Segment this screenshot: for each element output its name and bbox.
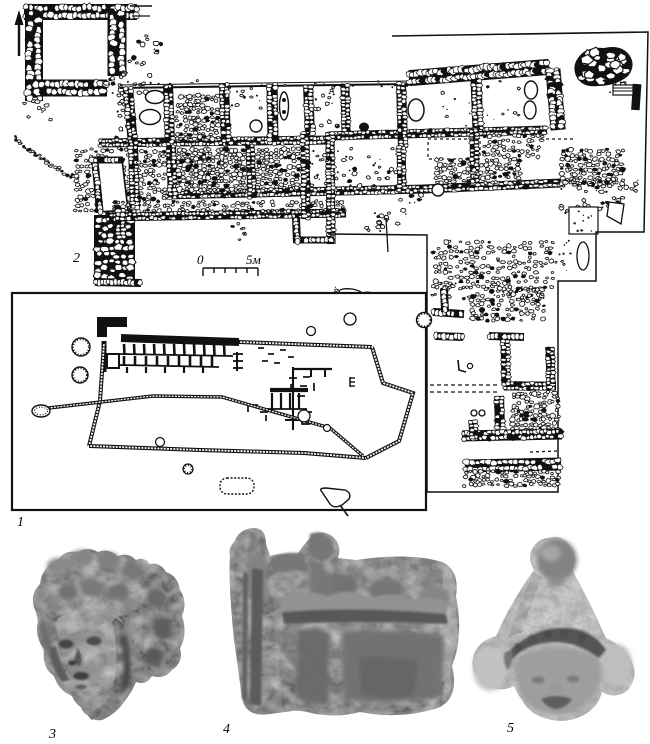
svg-text:0: 0 [197,252,204,267]
svg-text:5: 5 [507,721,514,736]
svg-text:2: 2 [73,251,80,266]
svg-text:4: 4 [223,722,230,737]
svg-text:5м: 5м [246,252,261,267]
svg-text:1: 1 [17,515,24,530]
svg-text:3: 3 [48,727,56,742]
